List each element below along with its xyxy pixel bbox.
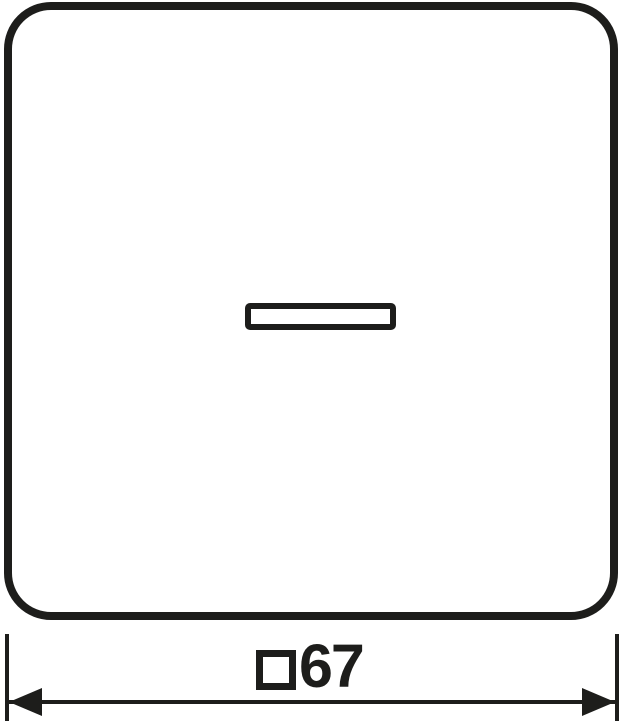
arrowhead-right-icon: [582, 688, 615, 716]
indicator-lens-window: [245, 303, 396, 330]
arrowhead-left-icon: [9, 688, 42, 716]
square-dimension-symbol-icon: [256, 650, 296, 690]
technical-drawing-canvas: 67: [0, 0, 626, 721]
dimension-value: 67: [299, 636, 363, 697]
dimension-line: [9, 700, 615, 704]
dimension-extension-line-right: [615, 634, 619, 721]
cover-plate-outline: [4, 2, 618, 620]
